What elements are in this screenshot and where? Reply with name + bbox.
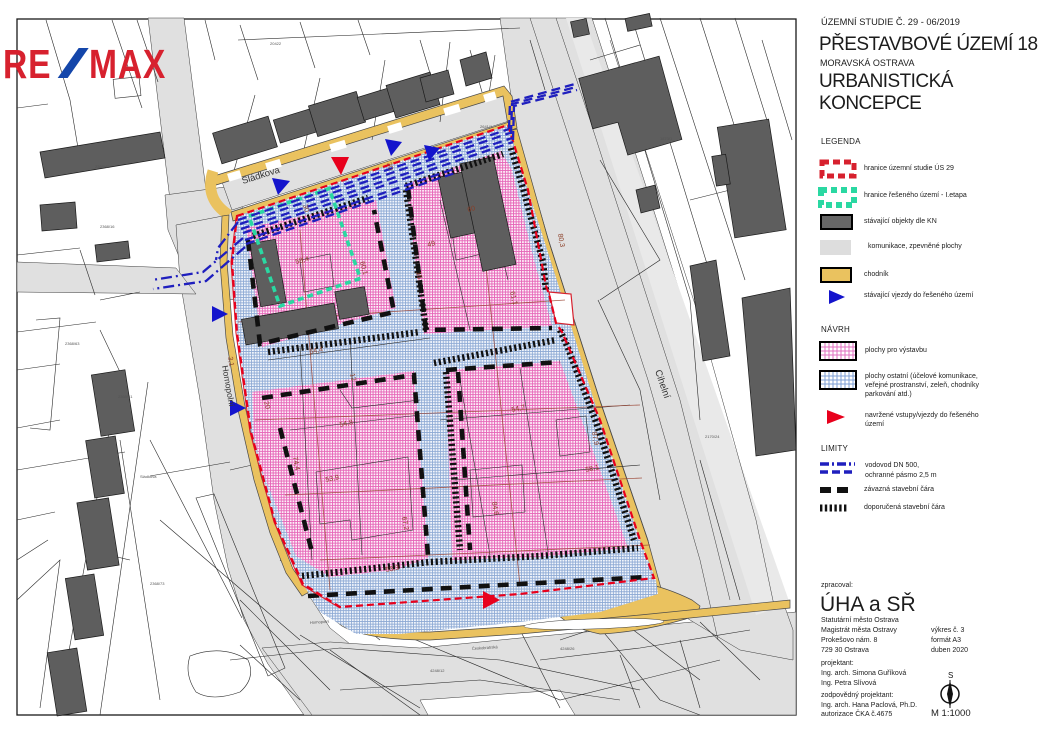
svg-text:2368/41: 2368/41: [118, 394, 133, 399]
svg-text:2641/1: 2641/1: [480, 124, 493, 129]
svg-text:2368/63: 2368/63: [65, 341, 80, 346]
svg-text:4248/12: 4248/12: [430, 668, 445, 673]
svg-text:Sládkova: Sládkova: [140, 474, 157, 479]
svg-text:S: S: [948, 671, 953, 680]
svg-text:1873/1: 1873/1: [660, 136, 673, 141]
svg-text:2170/24: 2170/24: [705, 434, 720, 439]
svg-text:2368/16: 2368/16: [100, 224, 115, 229]
svg-text:2368/42: 2368/42: [95, 164, 110, 169]
svg-text:4248/26: 4248/26: [560, 646, 575, 651]
svg-text:20422: 20422: [270, 41, 282, 46]
svg-text:2368/73: 2368/73: [150, 581, 165, 586]
